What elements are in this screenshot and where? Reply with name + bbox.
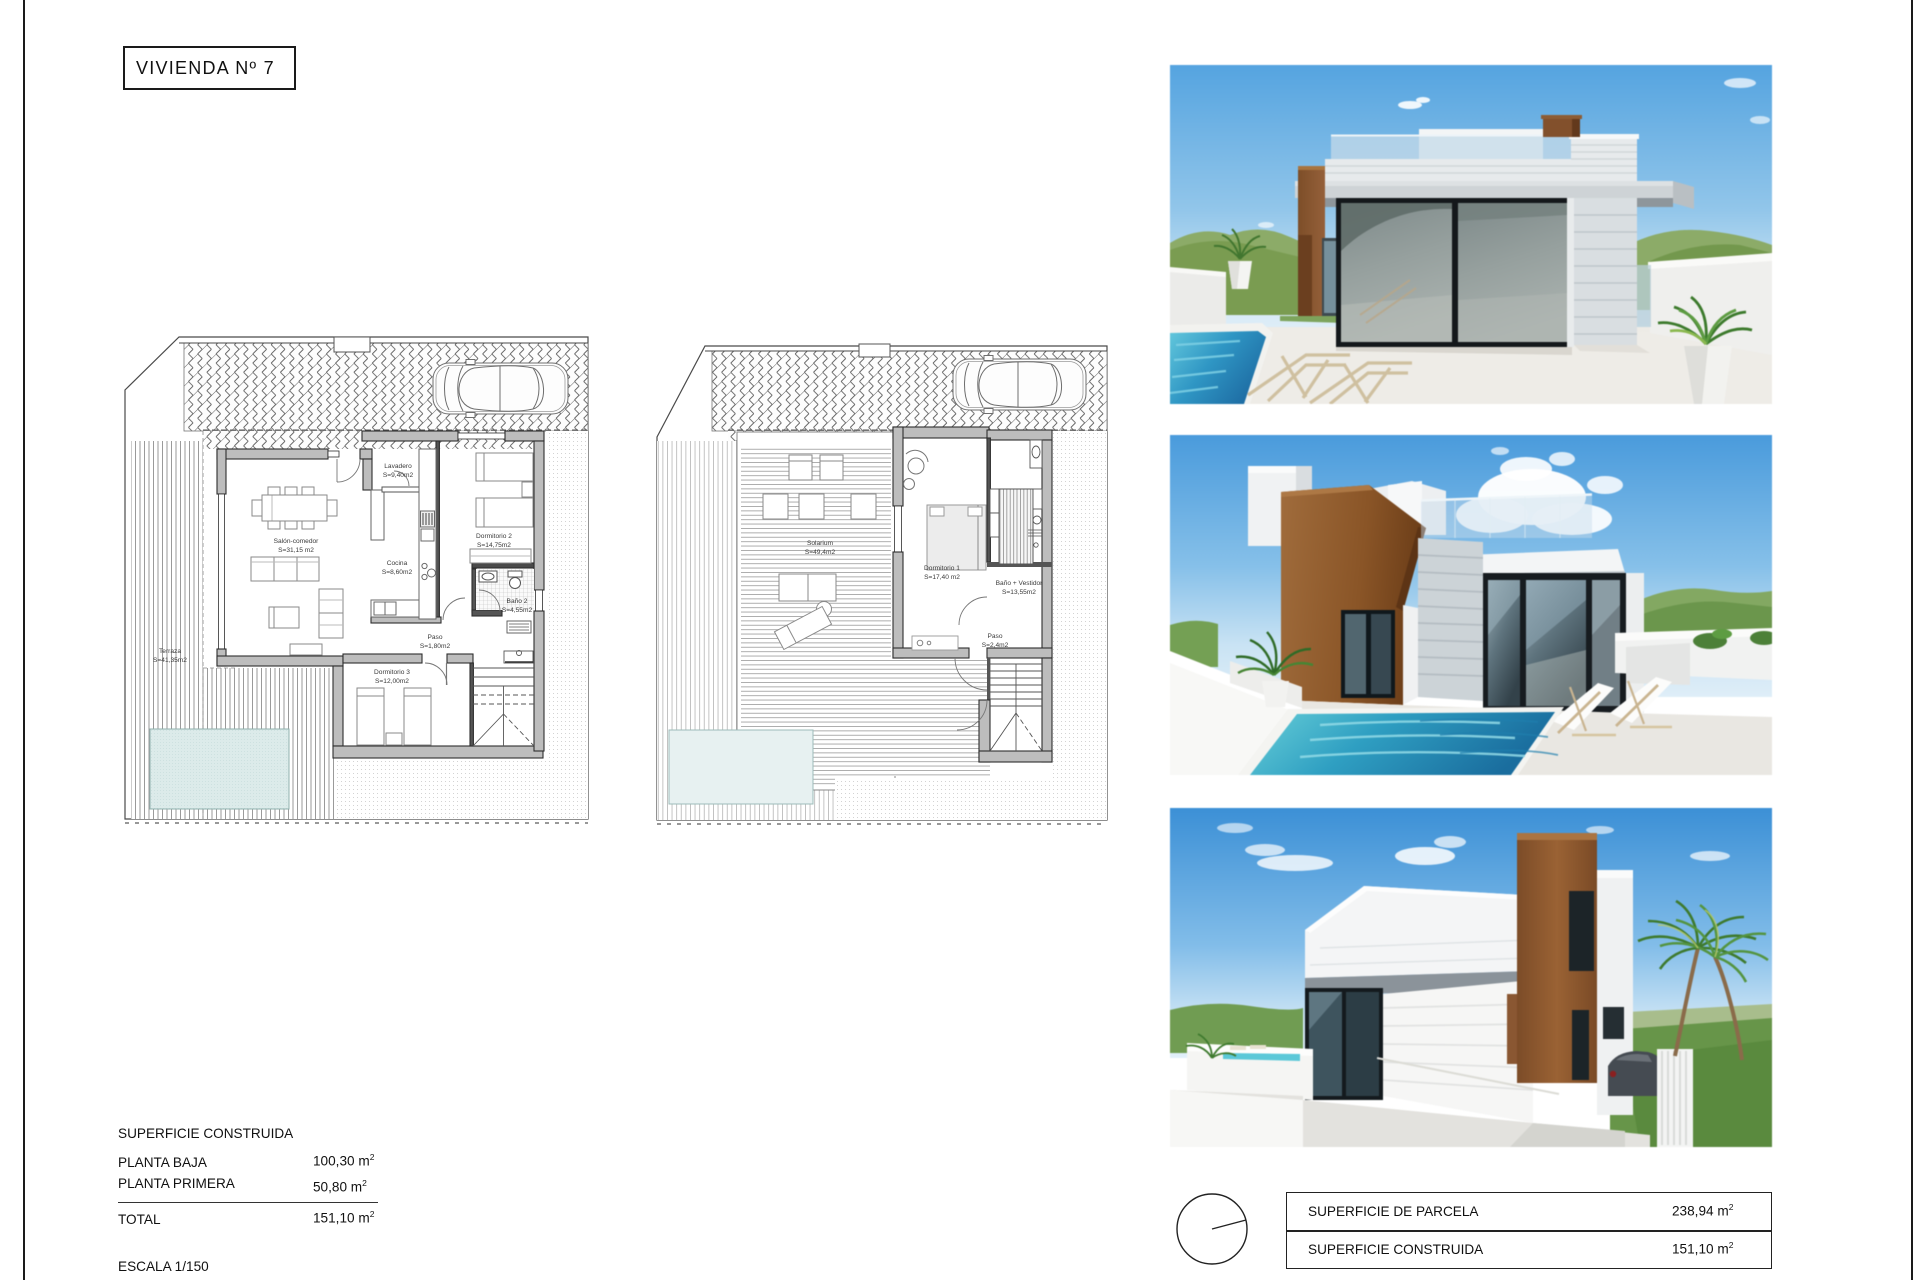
svg-text:Salón-comedor: Salón-comedor bbox=[274, 538, 320, 545]
svg-text:S=9,40m2: S=9,40m2 bbox=[383, 472, 414, 479]
svg-text:Baño 2: Baño 2 bbox=[507, 598, 528, 605]
svg-text:S=41,35m2: S=41,35m2 bbox=[153, 657, 187, 664]
svg-text:S=31,15 m2: S=31,15 m2 bbox=[278, 547, 314, 554]
svg-text:Solarium: Solarium bbox=[807, 540, 834, 547]
svg-text:Cocina: Cocina bbox=[387, 560, 408, 567]
svg-text:S=2,4m2: S=2,4m2 bbox=[982, 642, 1009, 649]
svg-text:S=17,40 m2: S=17,40 m2 bbox=[924, 574, 960, 581]
svg-text:S=1,80m2: S=1,80m2 bbox=[420, 643, 451, 650]
svg-text:Baño + Vestidor: Baño + Vestidor bbox=[996, 580, 1044, 587]
svg-text:S=4,55m2: S=4,55m2 bbox=[502, 607, 533, 614]
svg-text:Dormitorio 1: Dormitorio 1 bbox=[924, 565, 960, 572]
svg-text:Dormitorio 3: Dormitorio 3 bbox=[374, 669, 410, 676]
svg-text:Paso: Paso bbox=[427, 634, 442, 641]
svg-text:Terraza: Terraza bbox=[159, 648, 181, 655]
svg-text:S=49,4m2: S=49,4m2 bbox=[805, 549, 836, 556]
svg-text:S=13,55m2: S=13,55m2 bbox=[1002, 589, 1036, 596]
svg-text:S=8,60m2: S=8,60m2 bbox=[382, 569, 413, 576]
svg-text:Dormitorio 2: Dormitorio 2 bbox=[476, 533, 512, 540]
svg-text:S=14,75m2: S=14,75m2 bbox=[477, 542, 511, 549]
svg-text:Lavadero: Lavadero bbox=[384, 463, 412, 470]
svg-text:S=12,00m2: S=12,00m2 bbox=[375, 678, 409, 685]
svg-text:Paso: Paso bbox=[987, 633, 1002, 640]
